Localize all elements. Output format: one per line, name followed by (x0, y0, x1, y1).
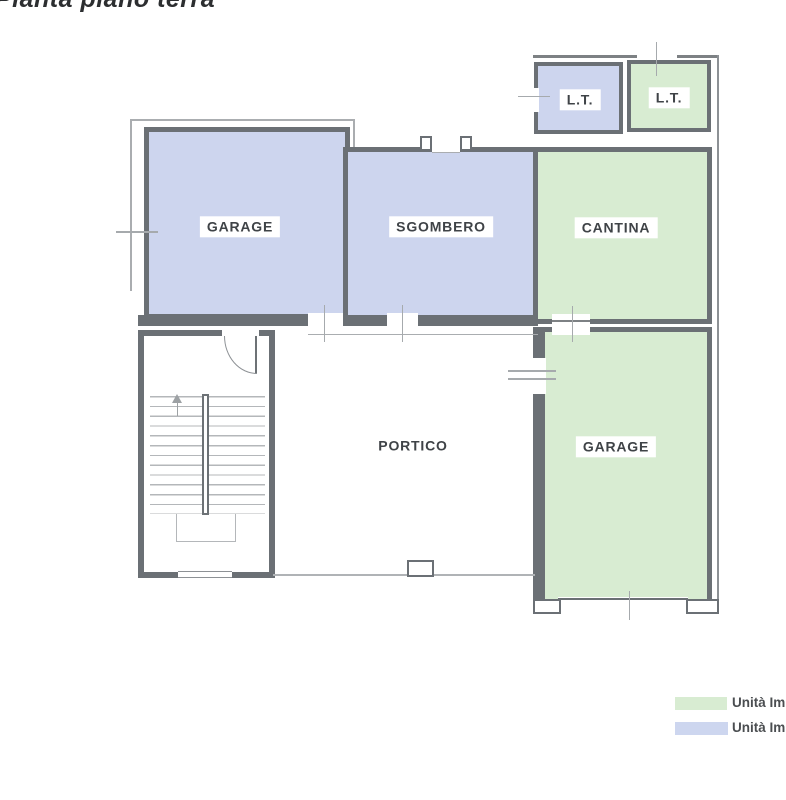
garage-door-line (558, 598, 688, 600)
wall-stub (686, 599, 719, 614)
door-opening (308, 313, 343, 328)
outer-wall-line (130, 119, 132, 291)
window-tick (518, 96, 550, 98)
window-line (432, 152, 460, 154)
outer-wall-line (717, 55, 719, 613)
outer-wall-line (130, 119, 355, 121)
room-label-garage-lower: GARAGE (576, 436, 656, 457)
room-label-garage-upper: GARAGE (200, 216, 280, 237)
door-leaf (255, 336, 257, 373)
stair-arrow-shaft (177, 403, 179, 416)
door-threshold (178, 571, 232, 573)
room-label-sgombero: SGOMBERO (389, 216, 493, 237)
floor-plan: GARAGE SGOMBERO CANTINA L.T. L.T. PORTIC… (0, 0, 786, 800)
room-label-portico: PORTICO (371, 435, 454, 456)
pillar (407, 560, 434, 577)
door-threshold (178, 577, 232, 579)
door-tick (324, 305, 326, 342)
room-garage-lower (533, 327, 712, 605)
outer-wall-line (353, 119, 355, 148)
door-tick (508, 370, 556, 372)
window-opening (637, 54, 677, 59)
door-opening (530, 358, 546, 394)
stair-direction-arrow-icon (172, 394, 182, 403)
room-label-cantina: CANTINA (575, 217, 658, 238)
door-tick (572, 306, 574, 342)
window-opening (530, 88, 539, 112)
portico-edge-line (273, 574, 535, 576)
wall-stub (533, 599, 561, 614)
stair-landing (176, 514, 236, 542)
door-tick (402, 305, 404, 342)
stair-stringer (202, 394, 209, 515)
door-tick (508, 378, 556, 380)
room-label-lt-right: L.T. (649, 87, 690, 108)
wall-face-line (308, 334, 538, 336)
window-tick (656, 42, 658, 76)
window-tick (116, 231, 158, 233)
room-label-lt-left: L.T. (560, 89, 601, 110)
garage-door-tick (629, 591, 631, 620)
window-jamb (460, 136, 472, 151)
window-jamb (420, 136, 432, 151)
floorplan-page: Pianta piano terra (0, 0, 786, 800)
wall-segment (533, 55, 719, 58)
